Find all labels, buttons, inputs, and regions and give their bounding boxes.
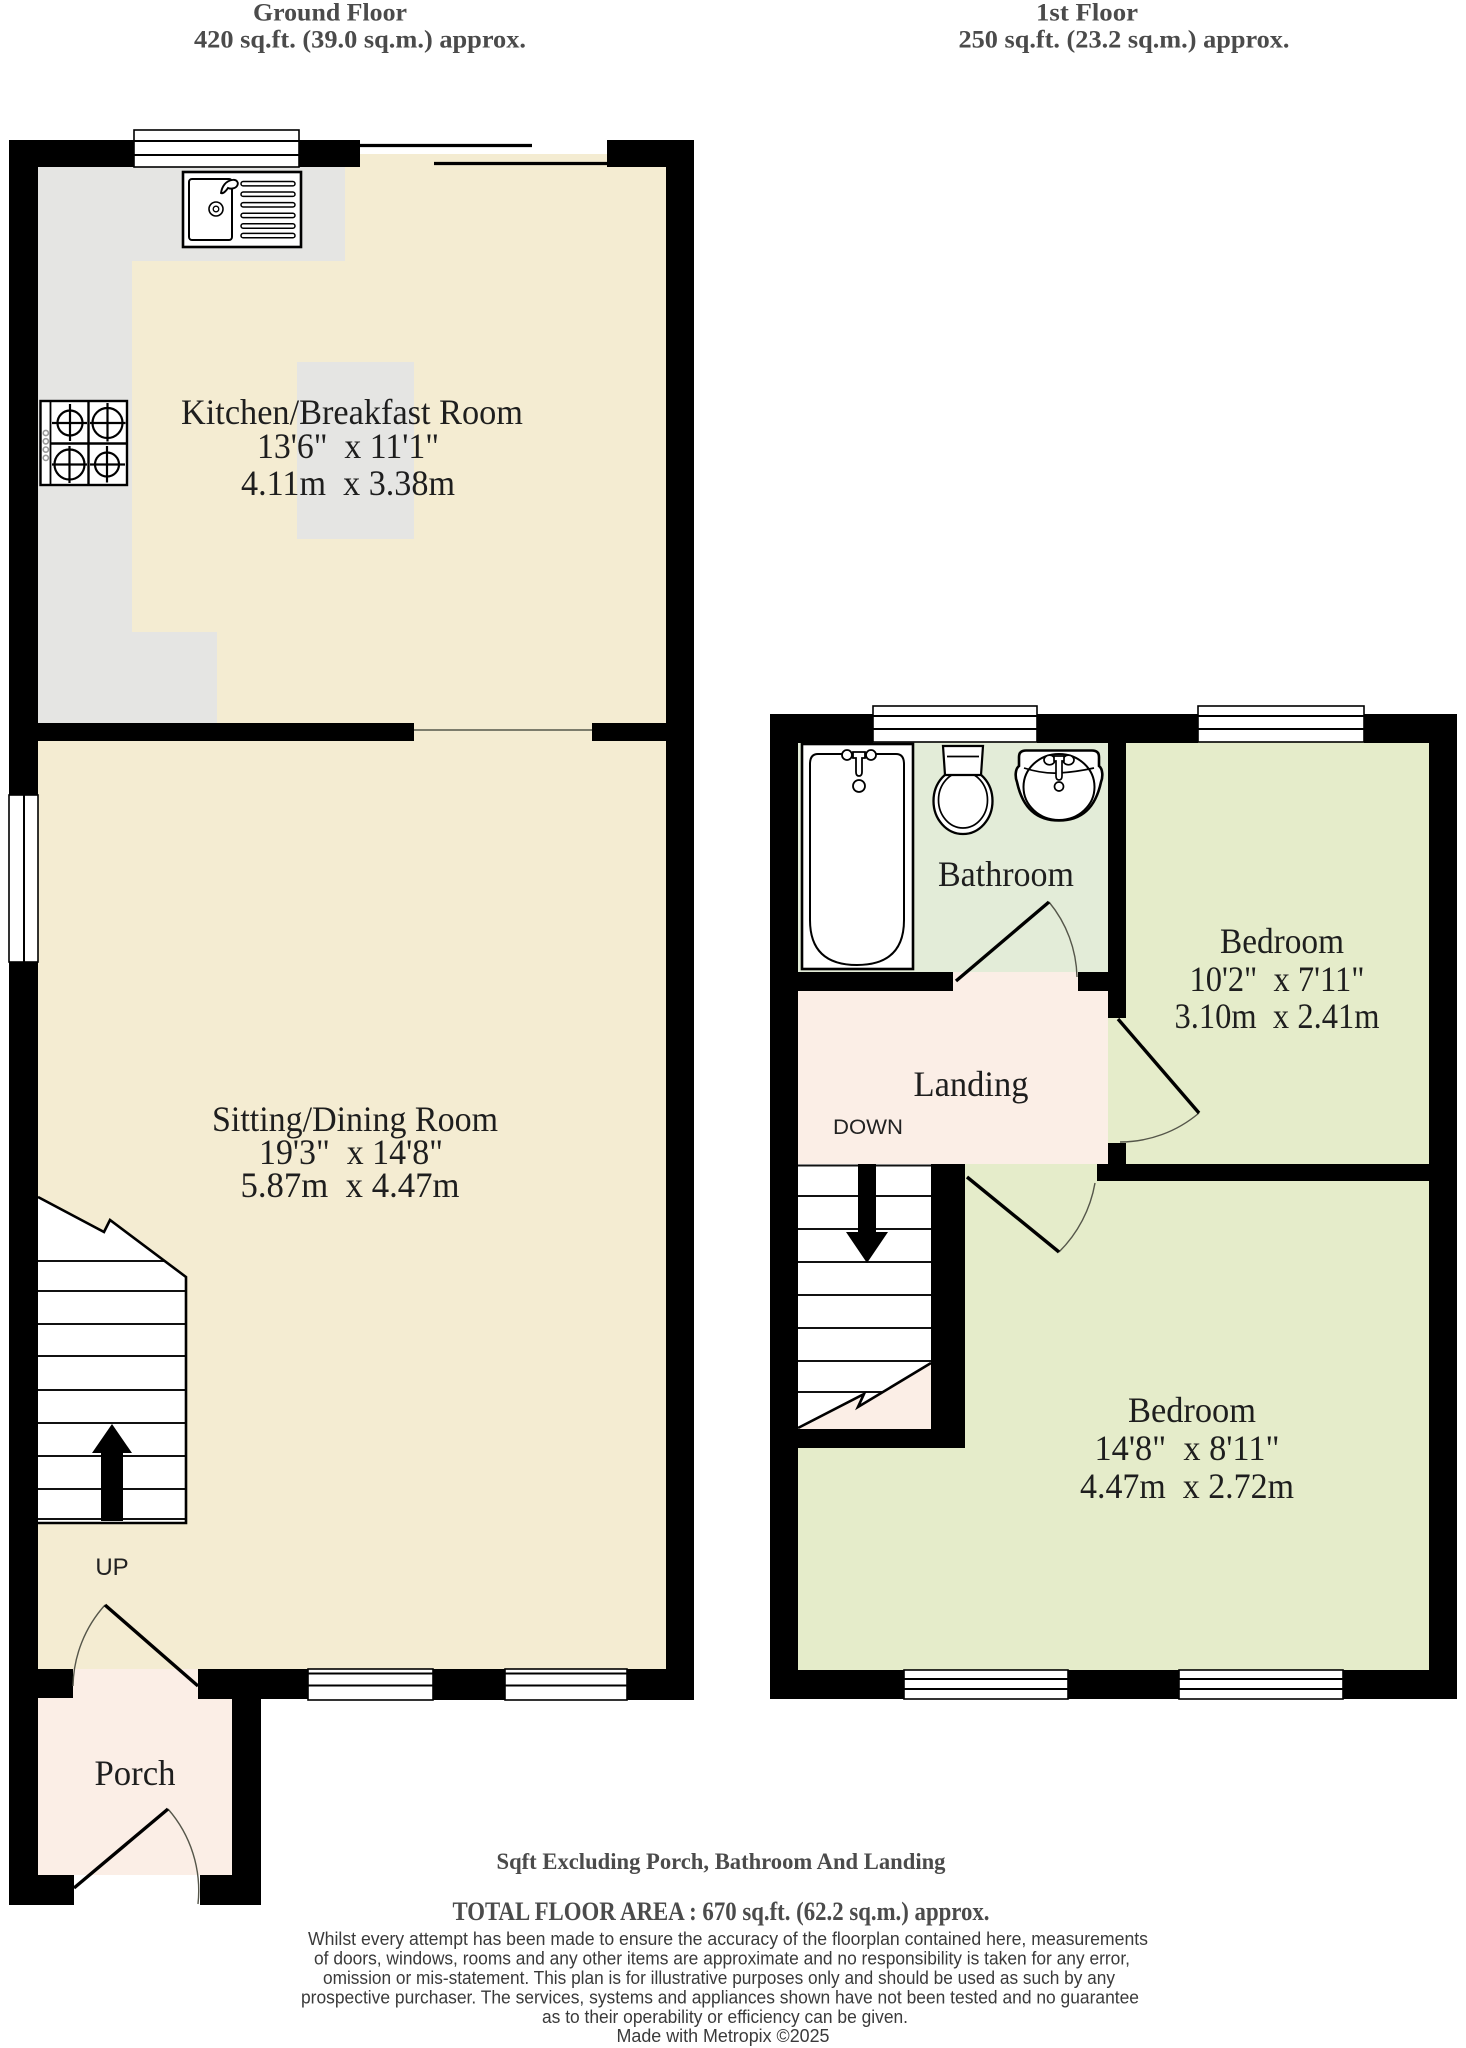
svg-text:Ground Floor: Ground Floor <box>253 0 407 27</box>
svg-text:4.11m x 3.38m: 4.11m x 3.38m <box>241 463 455 503</box>
svg-text:5.87m x 4.47m: 5.87m x 4.47m <box>241 1165 460 1205</box>
svg-text:3.10m x 2.41m: 3.10m x 2.41m <box>1175 996 1380 1036</box>
svg-text:of doors, windows, rooms and a: of doors, windows, rooms and any other i… <box>314 1949 1130 1969</box>
svg-text:4.47m x 2.72m: 4.47m x 2.72m <box>1080 1466 1294 1506</box>
svg-text:DOWN: DOWN <box>833 1115 903 1139</box>
svg-text:Made with Metropix ©2025: Made with Metropix ©2025 <box>617 2026 830 2046</box>
svg-text:13'6" x 11'1": 13'6" x 11'1" <box>257 426 439 466</box>
svg-text:Porch: Porch <box>95 1753 176 1793</box>
svg-text:Whilst every attempt has been: Whilst every attempt has been made to en… <box>308 1929 1148 1949</box>
svg-text:UP: UP <box>95 1554 128 1581</box>
svg-text:as to their operability or eff: as to their operability or efficiency ca… <box>542 2007 908 2027</box>
svg-text:omission or mis-statement. Thi: omission or mis-statement. This plan is … <box>323 1968 1115 1988</box>
svg-text:Sqft Excluding Porch, Bathroom: Sqft Excluding Porch, Bathroom And Landi… <box>497 1849 946 1874</box>
svg-text:250 sq.ft. (23.2 sq.m.) approx: 250 sq.ft. (23.2 sq.m.) approx. <box>959 27 1290 54</box>
svg-text:TOTAL FLOOR AREA : 670 sq.ft.: TOTAL FLOOR AREA : 670 sq.ft. (62.2 sq.m… <box>453 1897 990 1926</box>
svg-text:Bedroom: Bedroom <box>1128 1390 1256 1430</box>
svg-text:Bedroom: Bedroom <box>1220 921 1344 961</box>
svg-text:prospective purchaser. The ser: prospective purchaser. The services, sys… <box>301 1988 1139 2008</box>
svg-text:420 sq.ft. (39.0 sq.m.) approx: 420 sq.ft. (39.0 sq.m.) approx. <box>194 27 526 54</box>
svg-text:Landing: Landing <box>914 1064 1029 1104</box>
svg-text:14'8" x 8'11": 14'8" x 8'11" <box>1095 1428 1280 1468</box>
svg-text:10'2" x 7'11": 10'2" x 7'11" <box>1190 959 1365 999</box>
svg-text:1st Floor: 1st Floor <box>1036 0 1138 27</box>
svg-text:Bathroom: Bathroom <box>938 854 1074 894</box>
